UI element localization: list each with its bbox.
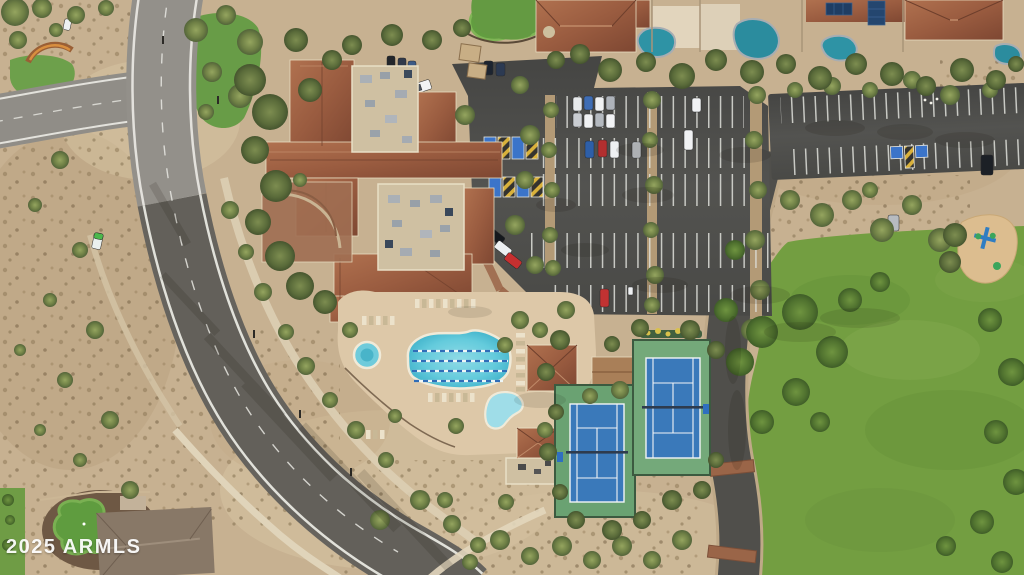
branch-road bbox=[0, 97, 148, 122]
lap-pool bbox=[408, 330, 511, 388]
tennis-net-right bbox=[642, 406, 704, 409]
tennis-net-left bbox=[566, 451, 628, 454]
watermark: 2025 ARMLS bbox=[6, 536, 141, 559]
tennis-court-right bbox=[642, 358, 709, 458]
aerial-scene bbox=[0, 0, 1024, 575]
play-dome bbox=[993, 262, 1001, 270]
aerial-photo: 2025 ARMLS bbox=[0, 0, 1024, 575]
